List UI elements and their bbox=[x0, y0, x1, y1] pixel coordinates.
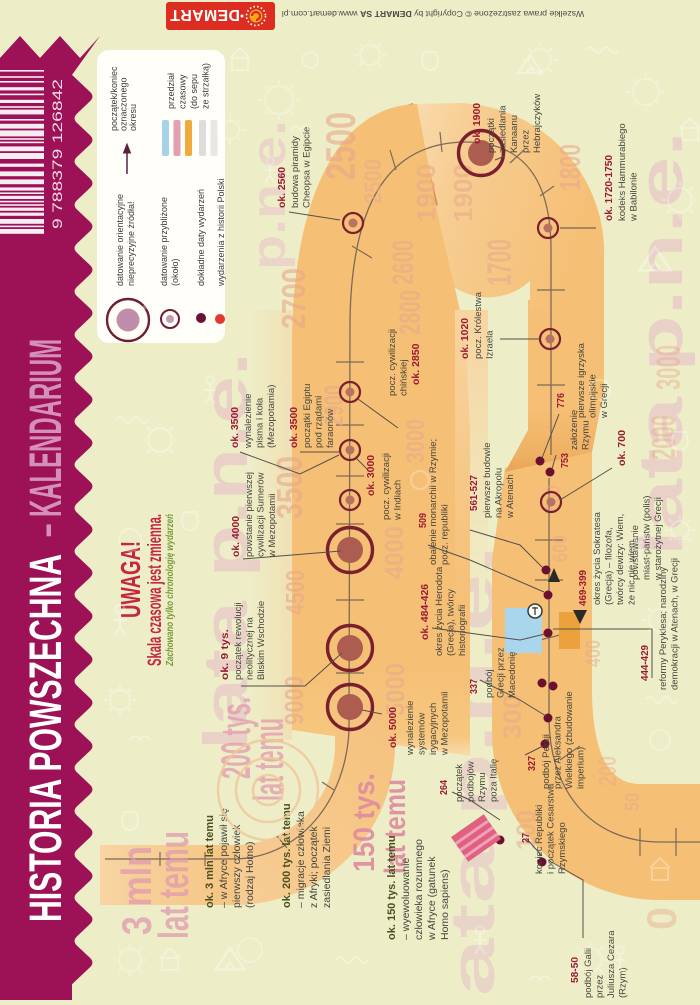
svg-text:ok. 5000: ok. 5000 bbox=[387, 707, 399, 748]
svg-text:400: 400 bbox=[582, 640, 605, 667]
svg-text:ok. 150 tys. lat temu: ok. 150 tys. lat temu bbox=[386, 835, 398, 940]
svg-text:pocz. cywilizacji: pocz. cywilizacji bbox=[381, 453, 392, 520]
svg-text:lat temu: lat temu bbox=[150, 831, 197, 939]
svg-text:faraonów: faraonów bbox=[325, 409, 336, 448]
svg-text:4000: 4000 bbox=[379, 526, 409, 579]
svg-text:9000: 9000 bbox=[279, 676, 309, 725]
svg-text:337: 337 bbox=[468, 679, 480, 694]
svg-text:753: 753 bbox=[559, 453, 571, 468]
svg-text:wydarzenia z historii Polski: wydarzenia z historii Polski bbox=[216, 178, 226, 287]
svg-text:(rodzaj Homo): (rodzaj Homo) bbox=[244, 841, 256, 908]
svg-text:chińskiej: chińskiej bbox=[399, 360, 410, 396]
svg-text:(Grecja), twórcy: (Grecja), twórcy bbox=[446, 589, 457, 656]
svg-text:2000: 2000 bbox=[645, 415, 683, 460]
svg-text:ok. 1720-1750: ok. 1720-1750 bbox=[603, 155, 615, 221]
svg-text:Cheopsa w Egipcie: Cheopsa w Egipcie bbox=[302, 127, 313, 208]
svg-text:założenie: założenie bbox=[569, 410, 580, 450]
svg-text:Juliusza Cezara: Juliusza Cezara bbox=[606, 930, 617, 998]
svg-text:4500: 4500 bbox=[280, 570, 310, 615]
svg-text:podbój Galii: podbój Galii bbox=[583, 948, 594, 998]
svg-text:(do sepu: (do sepu bbox=[189, 74, 199, 109]
svg-text:1800: 1800 bbox=[555, 144, 587, 191]
svg-text:Wielkiego (zbudowanie: Wielkiego (zbudowanie bbox=[564, 691, 575, 789]
svg-text:początek rewolucji: początek rewolucji bbox=[233, 602, 244, 680]
svg-text:2800: 2800 bbox=[394, 290, 427, 335]
svg-text:Rzymu: Rzymu bbox=[581, 420, 592, 450]
svg-text:(Mezopotamia): (Mezopotamia) bbox=[266, 385, 277, 448]
svg-text:0: 0 bbox=[638, 907, 685, 930]
svg-text:miast-państw (polis): miast-państw (polis) bbox=[642, 496, 653, 580]
svg-text:obalenie monarchii w Rzymie;: obalenie monarchii w Rzymie; bbox=[428, 439, 439, 565]
svg-text:początek/koniec: początek/koniec bbox=[109, 66, 119, 131]
svg-text:ok. 3 mln lat temu: ok. 3 mln lat temu bbox=[204, 815, 216, 908]
svg-text:Wszelkie prawa zastrzeżone © C: Wszelkie prawa zastrzeżone © Copyright b… bbox=[282, 9, 584, 19]
svg-text:Skala czasowa jest zmienna.: Skala czasowa jest zmienna. bbox=[145, 514, 166, 666]
svg-text:27: 27 bbox=[520, 833, 532, 843]
svg-text:w Atenach: w Atenach bbox=[505, 474, 516, 519]
svg-text:2600: 2600 bbox=[387, 240, 420, 285]
svg-text:okresu: okresu bbox=[128, 104, 138, 131]
svg-text:koniec Republiki: koniec Republiki bbox=[534, 805, 545, 874]
svg-text:neolitycznej na: neolitycznej na bbox=[245, 616, 256, 680]
svg-text:Rzymskiego: Rzymskiego bbox=[557, 822, 568, 874]
svg-text:historiografii: historiografii bbox=[457, 605, 468, 656]
svg-text:pocz. cywilizacji: pocz. cywilizacji bbox=[387, 329, 398, 396]
svg-text:HISTORIA POWSZECHNA: HISTORIA POWSZECHNA bbox=[20, 554, 71, 922]
svg-text:okres życia Herodota: okres życia Herodota bbox=[434, 566, 445, 656]
svg-text:nieprecyzyjne źródła!: nieprecyzyjne źródła! bbox=[126, 201, 136, 286]
svg-text:wynalezienie: wynalezienie bbox=[405, 701, 416, 756]
svg-text:UWAGA!: UWAGA! bbox=[115, 541, 146, 618]
svg-text:podbojów: podbojów bbox=[466, 761, 477, 802]
svg-text:Zachowano tylko chronologię wy: Zachowano tylko chronologię wydarzeń bbox=[165, 514, 176, 667]
svg-text:Bliskim Wschodzie: Bliskim Wschodzie bbox=[256, 601, 267, 680]
svg-text:w Indiach: w Indiach bbox=[393, 480, 404, 521]
svg-text:wynalezienie: wynalezienie bbox=[243, 394, 254, 449]
svg-text:ok. 1900: ok. 1900 bbox=[471, 103, 483, 144]
svg-text:1900: 1900 bbox=[411, 164, 441, 222]
svg-text:poza Italię: poza Italię bbox=[489, 759, 500, 802]
svg-text:2500: 2500 bbox=[317, 112, 364, 180]
svg-text:powstanie pierwszej: powstanie pierwszej bbox=[244, 472, 255, 557]
svg-text:kodeks Hammurabiego: kodeks Hammurabiego bbox=[617, 123, 628, 221]
svg-text:3000: 3000 bbox=[650, 345, 688, 390]
svg-text:600: 600 bbox=[549, 535, 572, 562]
svg-text:czasowy: czasowy bbox=[178, 74, 188, 109]
svg-text:datowanie orientacyjne: datowanie orientacyjne bbox=[115, 194, 125, 286]
svg-text:okres życia Sokratesa: okres życia Sokratesa bbox=[592, 511, 603, 605]
svg-text:podbój: podbój bbox=[484, 669, 495, 698]
svg-text:pierwsze budowle: pierwsze budowle bbox=[482, 442, 493, 518]
svg-text:pierwsze igrzyska: pierwsze igrzyska bbox=[576, 342, 587, 418]
svg-text:imperium): imperium) bbox=[576, 747, 587, 789]
svg-text:początki: początki bbox=[486, 118, 497, 153]
svg-text:– KALENDARIUM: – KALENDARIUM bbox=[20, 339, 71, 537]
svg-text:300: 300 bbox=[499, 694, 527, 739]
svg-text:budowa piramidy: budowa piramidy bbox=[290, 136, 301, 208]
svg-text:pod rządami: pod rządami bbox=[314, 396, 325, 448]
svg-text:ok. 3500: ok. 3500 bbox=[229, 407, 241, 448]
svg-text:i początek Cesarstwa: i początek Cesarstwa bbox=[546, 783, 557, 874]
svg-text:444-429: 444-429 bbox=[639, 645, 651, 681]
svg-text:z Afryki; początek: z Afryki; początek bbox=[308, 826, 320, 908]
svg-text:Kanaanu: Kanaanu bbox=[509, 115, 520, 153]
svg-text:datowanie przybliżone: datowanie przybliżone bbox=[159, 197, 169, 286]
svg-text:9 788379 126842: 9 788379 126842 bbox=[50, 79, 65, 229]
svg-text:– migracje człowieka: – migracje człowieka bbox=[295, 811, 307, 908]
svg-text:irygacyjnych: irygacyjnych bbox=[428, 703, 439, 755]
svg-text:pocz. Królestwa: pocz. Królestwa bbox=[473, 291, 484, 359]
svg-text:ze strzałką): ze strzałką) bbox=[201, 63, 211, 109]
svg-text:ok. 3000: ok. 3000 bbox=[365, 455, 377, 496]
svg-text:200: 200 bbox=[594, 756, 622, 786]
svg-text:twórcy dewizy: Wiem,: twórcy dewizy: Wiem, bbox=[615, 514, 626, 605]
svg-text:pisma i koła: pisma i koła bbox=[255, 397, 266, 448]
svg-text:pierwszy człowiek: pierwszy człowiek bbox=[231, 824, 243, 908]
svg-text:człowieka rozumnego: człowieka rozumnego bbox=[413, 839, 425, 940]
svg-text:p.n.e.: p.n.e. bbox=[243, 120, 296, 270]
svg-text:ok. 1020: ok. 1020 bbox=[459, 318, 471, 359]
svg-text:Homo sapiens): Homo sapiens) bbox=[439, 869, 451, 940]
svg-text:przez: przez bbox=[595, 975, 606, 998]
svg-text:ok. 4000: ok. 4000 bbox=[230, 516, 242, 557]
svg-text:na Akropolu: na Akropolu bbox=[494, 468, 505, 518]
svg-text:1700: 1700 bbox=[481, 239, 519, 286]
svg-text:Rzymu: Rzymu bbox=[477, 772, 488, 802]
svg-text:– w Afryce pojawił się: – w Afryce pojawił się bbox=[218, 808, 230, 908]
svg-text:początek: początek bbox=[454, 764, 465, 802]
svg-text:w Babilonie: w Babilonie bbox=[629, 172, 640, 222]
svg-text:DEMART: DEMART bbox=[170, 6, 240, 23]
svg-text:264: 264 bbox=[438, 780, 450, 795]
svg-text:Macedonię: Macedonię bbox=[507, 652, 518, 698]
svg-text:początki Egiptu: początki Egiptu bbox=[302, 384, 313, 448]
svg-text:oznaczonego: oznaczonego bbox=[119, 77, 129, 131]
svg-text:zasiedlania: zasiedlania bbox=[498, 105, 509, 153]
svg-text:pocz. republiki: pocz. republiki bbox=[440, 504, 451, 565]
svg-text:przez Aleksandra: przez Aleksandra bbox=[553, 715, 564, 789]
svg-text:systemów: systemów bbox=[417, 713, 428, 755]
svg-text:150 tys.: 150 tys. bbox=[348, 773, 381, 872]
svg-text:przez: przez bbox=[521, 130, 532, 153]
svg-text:2500: 2500 bbox=[360, 159, 387, 204]
svg-text:w Mezopotamii: w Mezopotamii bbox=[440, 692, 451, 756]
svg-text:ok. 9 tys.: ok. 9 tys. bbox=[219, 629, 231, 680]
svg-text:cywilizacji Sumerów: cywilizacji Sumerów bbox=[256, 472, 267, 557]
svg-text:przedział: przedział bbox=[166, 73, 176, 109]
svg-text:50: 50 bbox=[622, 793, 644, 811]
svg-text:ok. 700: ok. 700 bbox=[616, 430, 628, 466]
svg-text:zasiedlania Ziemi: zasiedlania Ziemi bbox=[321, 827, 333, 908]
svg-text:Hebrajczyków: Hebrajczyków bbox=[532, 94, 543, 153]
svg-text:ok. 2560: ok. 2560 bbox=[276, 167, 288, 208]
svg-text:Grecji przez: Grecji przez bbox=[496, 647, 507, 698]
svg-text:ok. 3500: ok. 3500 bbox=[288, 407, 300, 448]
svg-text:Izraela: Izraela bbox=[485, 330, 496, 359]
svg-text:w Grecji: w Grecji bbox=[599, 384, 610, 419]
svg-text:469-399: 469-399 bbox=[577, 570, 589, 606]
svg-text:561-527: 561-527 bbox=[468, 475, 480, 511]
svg-text:3000: 3000 bbox=[402, 419, 430, 463]
svg-text:ok. 2850: ok. 2850 bbox=[410, 343, 422, 385]
svg-text:2700: 2700 bbox=[275, 268, 312, 329]
svg-text:327: 327 bbox=[526, 756, 538, 771]
svg-text:dokładne daty wydarzeń: dokładne daty wydarzeń bbox=[196, 189, 206, 286]
svg-text:(około): (około) bbox=[170, 258, 180, 286]
svg-text:– wyewoluowanie: – wyewoluowanie bbox=[400, 858, 412, 940]
svg-text:(Grecja) – filozofa,: (Grecja) – filozofa, bbox=[604, 527, 615, 605]
svg-text:w Mezopotamii: w Mezopotamii bbox=[267, 494, 278, 558]
svg-text:776: 776 bbox=[555, 393, 567, 408]
svg-text:w Afryce (gatunek: w Afryce (gatunek bbox=[426, 856, 438, 941]
svg-text:podbój Persji: podbój Persji bbox=[541, 734, 552, 789]
svg-text:ok. 484-426: ok. 484-426 bbox=[419, 584, 431, 640]
